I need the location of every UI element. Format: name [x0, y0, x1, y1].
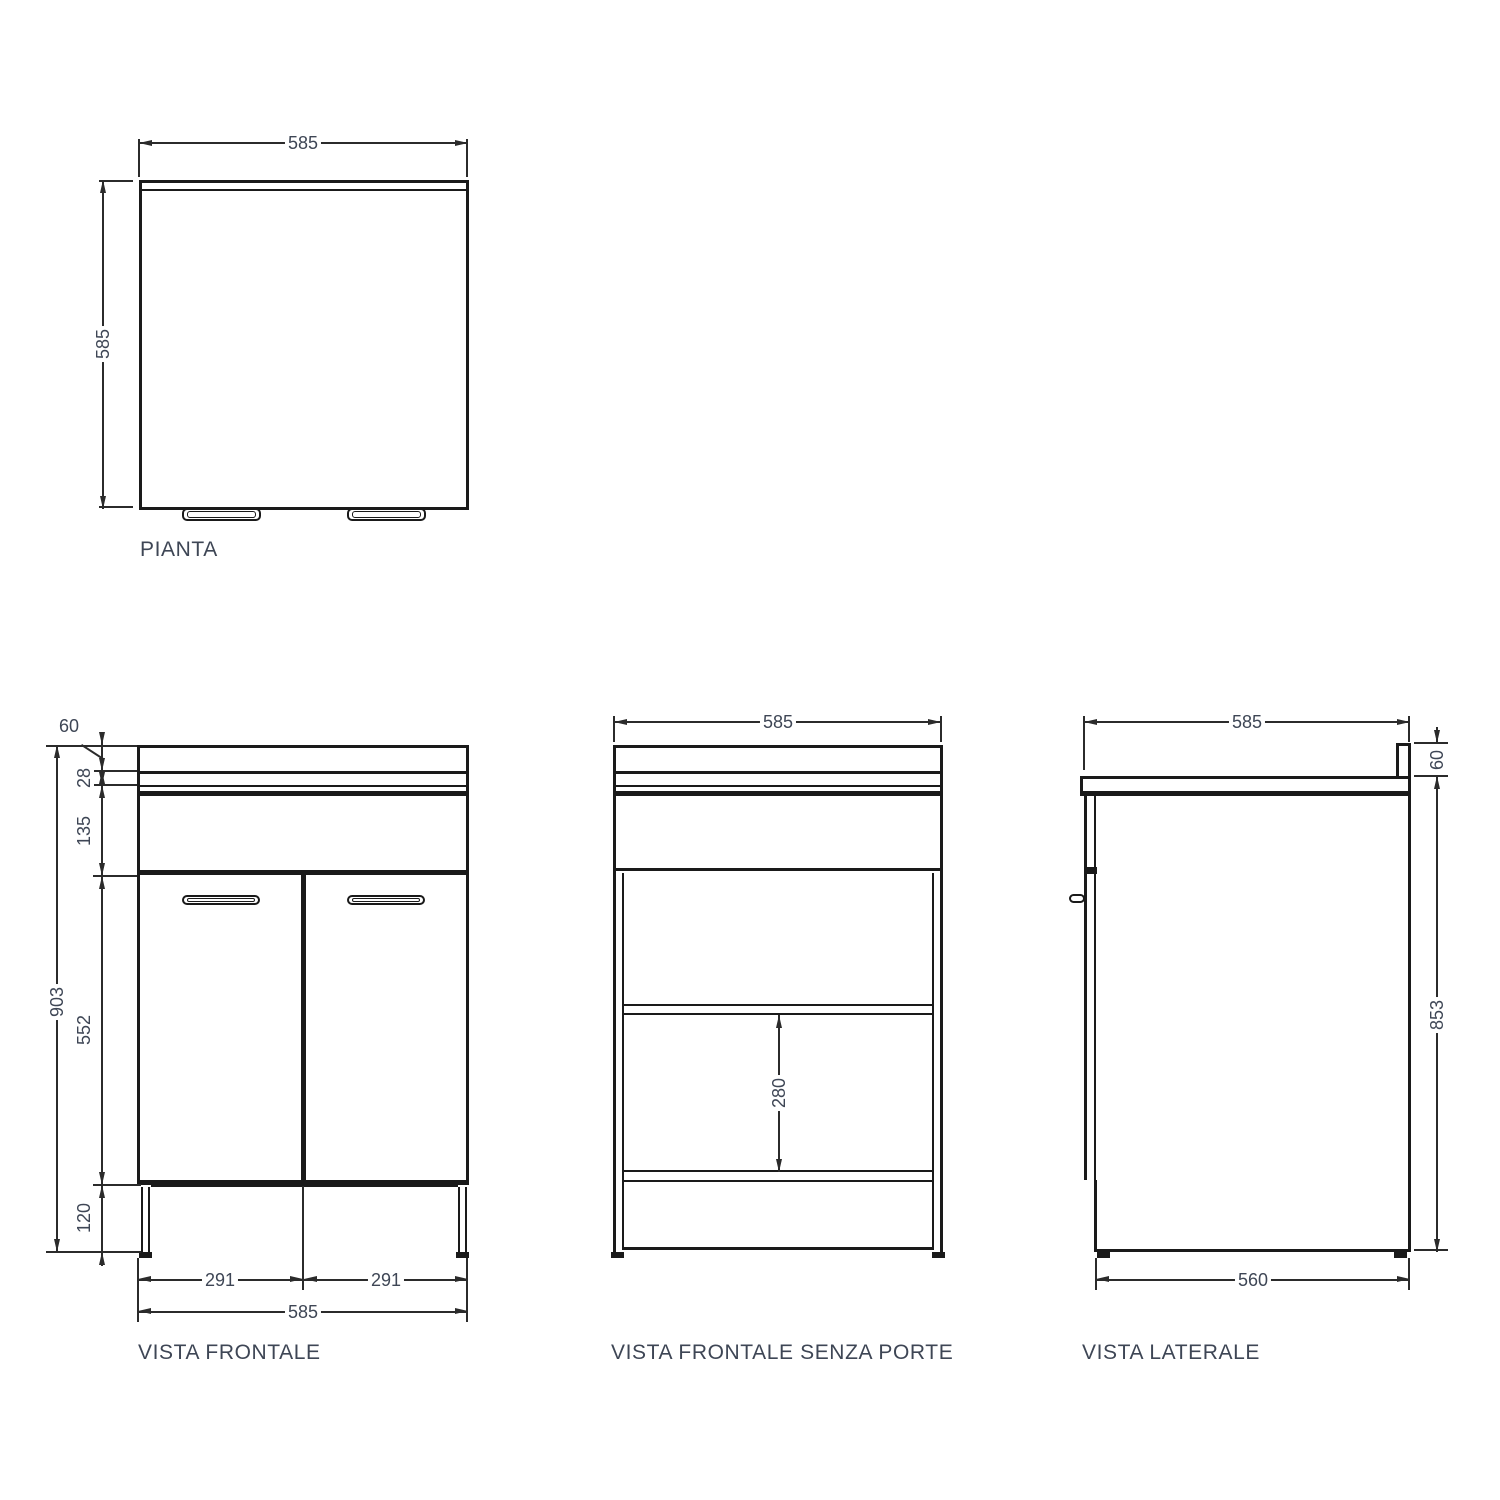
side-view: 585 60 853 560 VISTA LATERALE [0, 0, 1500, 1500]
cabinet-back-edge [1408, 743, 1411, 1252]
arrow-down-icon [1434, 730, 1440, 743]
worktop-front-cap [1080, 776, 1083, 796]
door-edge-inner [1094, 796, 1096, 1180]
view-title-side: VISTA LATERALE [1082, 1342, 1260, 1363]
arrow-left-icon [1084, 719, 1097, 725]
cabinet-bottom-line [1094, 1249, 1411, 1252]
worktop-bottom-line [1080, 791, 1411, 796]
arrow-right-icon [1397, 1276, 1410, 1282]
arrow-right-icon [1397, 719, 1410, 725]
extension-line [1414, 742, 1448, 744]
dim-side-depth: 560 [1235, 1270, 1271, 1290]
door-handle [1069, 894, 1085, 903]
backsplash-front-edge [1396, 743, 1399, 778]
drawer-gap-tick [1084, 867, 1097, 874]
extension-line [1414, 1249, 1448, 1251]
extension-line [1095, 1258, 1097, 1290]
cabinet-front-lower-edge [1094, 1180, 1097, 1252]
extension-line [1408, 1258, 1410, 1290]
foot [1097, 1252, 1110, 1258]
dim-side-height: 853 [1427, 997, 1447, 1033]
dim-side-top: 60 [1427, 747, 1447, 773]
foot [1394, 1252, 1407, 1258]
arrow-left-icon [1096, 1276, 1109, 1282]
dim-side-width: 585 [1229, 712, 1265, 732]
technical-drawing-canvas: 585 585 PIANTA [0, 0, 1500, 1500]
worktop-top-line [1080, 776, 1411, 779]
extension-line [1414, 775, 1448, 777]
door-edge-outer [1084, 796, 1087, 1180]
